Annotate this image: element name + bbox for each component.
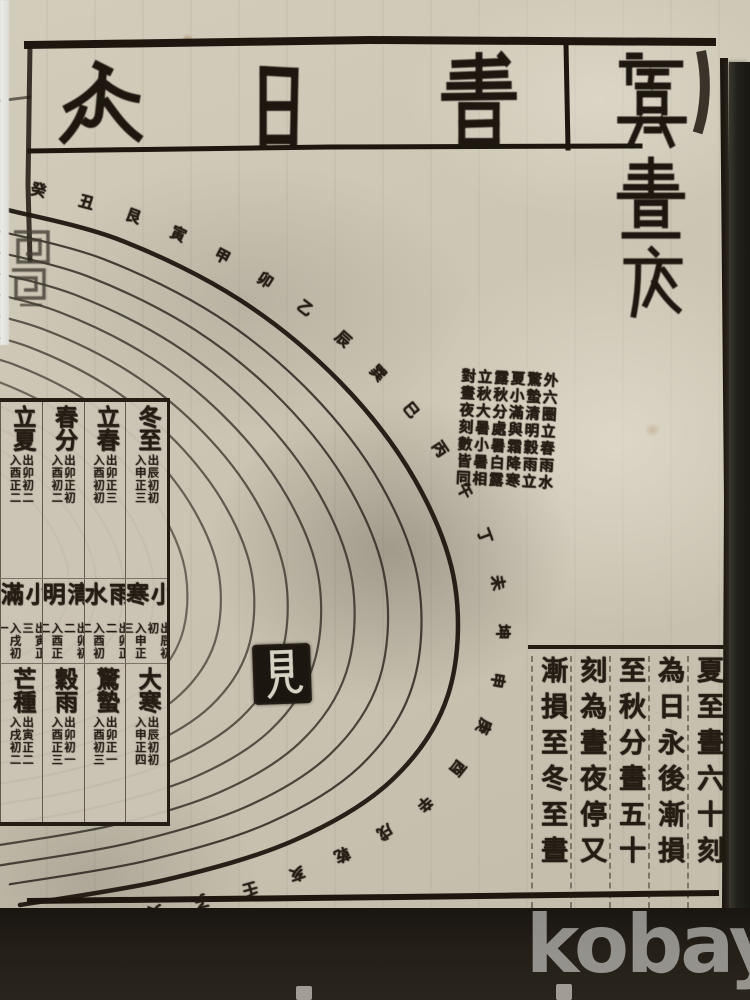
rblock-column: 至秋分晝五十 <box>609 656 648 918</box>
rim-glyph: 乙 <box>293 295 318 321</box>
rim-glyph: 巳 <box>398 397 424 422</box>
sunrise-sunset-times: 出辰初初入申正三 <box>134 454 159 504</box>
sunrise-time: 出辰初初 <box>147 716 160 766</box>
sunrise-time: 出辰初初 <box>147 454 160 504</box>
sunrise-sunset-times: 出寅正二入戌初二 <box>9 716 34 766</box>
solar-term-cell: 冬至出辰初初入申正三 <box>125 402 167 578</box>
sunrise-sunset-times: 出卯正初入酉初二 <box>50 454 75 504</box>
sunrise-time: 出卯正一 <box>105 716 118 766</box>
sunrise-time: 出卯初二 <box>21 454 34 504</box>
book-edge-shadow <box>729 62 750 1000</box>
solar-term-name: 芒種 <box>9 667 34 713</box>
rim-glyph: 亥 <box>287 862 308 887</box>
sunset-time: 入酉初二 <box>84 622 105 663</box>
rim-glyph: 酉 <box>446 756 472 781</box>
solar-term-cell: 驚蟄出卯正一入酉初三 <box>84 664 126 822</box>
solar-table-row: 冬至出辰初初入申正三立春出卯正三入酉初初春分出卯正初入酉初二立夏出卯初二入酉正二 <box>0 402 167 579</box>
rim-glyph: 辰 <box>331 326 356 352</box>
sunset-time: 入酉正二 <box>42 622 63 663</box>
solar-term-name: 小滿 <box>0 582 42 619</box>
solar-term-name: 春分 <box>51 405 76 451</box>
sunrise-sunset-times: 出卯初二入酉正二 <box>9 454 34 504</box>
sunrise-sunset-times: 出寅正三入戌初一 <box>0 622 42 663</box>
rim-glyph: 卯 <box>253 267 277 293</box>
rblock-column: 刻為晝夜停又 <box>570 656 609 918</box>
solar-term-name: 立夏 <box>9 405 34 451</box>
rim-glyph: 丙 <box>427 437 453 461</box>
kobay-watermark: kobay <box>526 898 750 991</box>
rim-glyph: 艮 <box>123 203 144 228</box>
solar-term-cell: 小寒出辰初初入申正三 <box>125 579 167 663</box>
sunrise-time: 出卯初一 <box>63 716 76 766</box>
rim-glyph: 巽 <box>366 360 392 385</box>
sunrise-time: 出寅正三 <box>21 622 41 663</box>
sunrise-sunset-times: 出辰初初入申正四 <box>134 716 159 766</box>
solar-term-cell: 清明出卯初二入酉正二 <box>42 579 84 663</box>
sunrise-sunset-times: 出卯初二入酉正二 <box>42 622 84 663</box>
rim-glyph: 甲 <box>211 242 234 268</box>
solar-term-cell: 大寒出辰初初入申正四 <box>125 664 167 822</box>
rblock-column: 為日永後漸損 <box>648 656 687 918</box>
rim-glyph: 庚 <box>472 716 497 738</box>
rim-glyph: 癸 <box>29 178 48 202</box>
solar-term-name: 小寒 <box>125 582 167 619</box>
sunrise-sunset-times: 出卯正二入酉初二 <box>84 622 126 663</box>
solar-table: 冬至出辰初初入申正三立春出卯正三入酉初初春分出卯正初入酉初二立夏出卯初二入酉正二… <box>0 398 170 826</box>
sunset-time: 入戌初一 <box>0 622 21 663</box>
sunset-time: 入酉初三 <box>92 716 105 766</box>
rim-glyph: 寅 <box>167 221 189 246</box>
solar-term-cell: 春分出卯正初入酉初二 <box>42 402 84 578</box>
sunset-time: 入酉初二 <box>50 454 63 504</box>
solar-term-name: 冬至 <box>134 405 159 451</box>
solar-term-cell: 芒種出寅正二入戌初二 <box>0 664 42 822</box>
solar-term-cell: 小滿出寅正三入戌初一 <box>0 579 42 663</box>
solar-term-name: 立春 <box>92 405 117 451</box>
solar-term-cell: 立春出卯正三入酉初初 <box>84 402 126 578</box>
sunrise-sunset-times: 出卯正三入酉初初 <box>92 454 117 504</box>
sunset-time: 入酉正二 <box>9 454 22 504</box>
solar-term-name: 大寒 <box>134 667 159 713</box>
rim-glyph: 戌 <box>374 820 398 846</box>
solar-term-name: 穀雨 <box>51 667 76 713</box>
rim-glyph: 乾 <box>331 843 354 868</box>
sunset-time: 入申正四 <box>134 716 147 766</box>
solar-term-name: 驚蟄 <box>92 667 117 713</box>
solar-term-name: 清明 <box>42 582 84 619</box>
solar-term-cell: 穀雨出卯初一入酉正三 <box>42 664 84 822</box>
rim-glyph: 申 <box>487 671 510 690</box>
solar-term-cell: 立夏出卯初二入酉正二 <box>0 402 42 578</box>
sunrise-time: 出辰初初 <box>147 622 167 663</box>
sunrise-time: 出卯正二 <box>105 622 125 663</box>
sunrise-sunset-times: 出辰初初入申正三 <box>125 622 167 663</box>
solar-table-row: 大寒出辰初初入申正四驚蟄出卯正一入酉初三穀雨出卯初一入酉正三芒種出寅正二入戌初二 <box>0 664 167 822</box>
bottom-tab-right <box>556 984 572 1000</box>
annotation-block: 外六圈立春雨水驚蟄清明穀雨立夏小滿與霜降寒露秋分處暑白露立秋大暑小暑相對晝夜刻數… <box>440 368 558 675</box>
sunset-time: 入酉初初 <box>92 454 105 504</box>
solar-term-cell: 雨水出卯正二入酉初二 <box>84 579 126 663</box>
sunrise-sunset-times: 出卯正一入酉初三 <box>92 716 117 766</box>
rblock-column: 漸損至冬至晝 <box>531 656 570 918</box>
book-page-photo: 永 日 書 虞 晝 夜 癸丑艮寅甲卯乙辰巽巳丙午丁未坤申庚酉辛戌乾亥壬子癸丑艮 … <box>0 0 750 1000</box>
sunset-time: 入酉正三 <box>50 716 63 766</box>
rim-glyph: 丑 <box>76 189 96 213</box>
sunrise-time: 出卯正初 <box>63 454 76 504</box>
bottom-tab-left <box>296 986 312 1000</box>
jian-seal: 見 <box>252 643 312 705</box>
sunrise-time: 出卯正三 <box>105 454 118 504</box>
seal-char: 見 <box>260 647 306 712</box>
photo-edge-sliver <box>0 0 9 345</box>
rblock-column: 夏至晝六十刻 <box>687 656 726 918</box>
sunrise-sunset-times: 出卯初一入酉正三 <box>50 716 75 766</box>
sunset-time: 入戌初二 <box>9 716 22 766</box>
solar-table-row: 小寒出辰初初入申正三雨水出卯正二入酉初二清明出卯初二入酉正二小滿出寅正三入戌初一 <box>0 579 167 664</box>
solar-term-name: 雨水 <box>84 582 126 619</box>
rim-glyph: 辛 <box>413 791 438 817</box>
sunrise-time: 出卯初二 <box>63 622 83 663</box>
sunset-time: 入申正三 <box>125 622 146 663</box>
sunrise-time: 出寅正二 <box>21 716 34 766</box>
sunset-time: 入申正三 <box>134 454 147 504</box>
rim-glyph: 壬 <box>240 877 260 901</box>
day-length-text-block: 夏至晝六十刻為日永後漸損至秋分晝五十刻為晝夜停又漸損至冬至晝 <box>528 645 726 918</box>
